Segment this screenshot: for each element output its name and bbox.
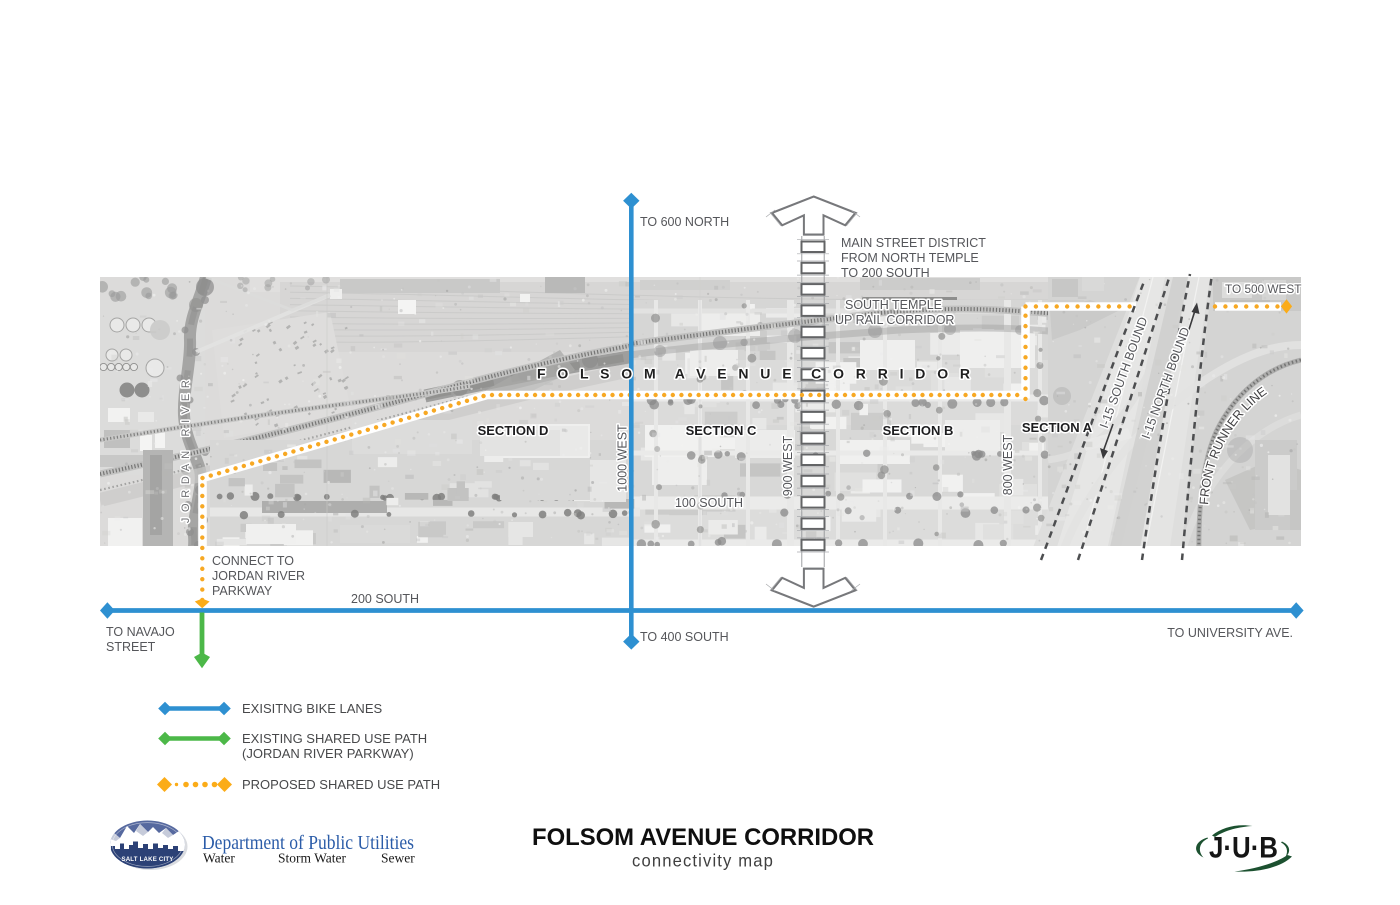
svg-text:STREET: STREET	[106, 640, 156, 654]
svg-text:EXISITNG BIKE LANES: EXISITNG BIKE LANES	[242, 701, 382, 716]
svg-text:SECTION A: SECTION A	[1022, 420, 1093, 435]
svg-text:PARKWAY: PARKWAY	[212, 584, 273, 598]
svg-text:UP RAIL CORRIDOR: UP RAIL CORRIDOR	[835, 313, 954, 327]
svg-text:200 SOUTH: 200 SOUTH	[351, 592, 419, 606]
svg-text:TO UNIVERSITY AVE.: TO UNIVERSITY AVE.	[1167, 626, 1293, 640]
svg-text:connectivity map: connectivity map	[632, 851, 774, 871]
svg-text:800 WEST: 800 WEST	[1001, 434, 1015, 495]
svg-text:PROPOSED SHARED USE PATH: PROPOSED SHARED USE PATH	[242, 777, 440, 792]
svg-text:J O R D A N R I V E R: J O R D A N R I V E R	[180, 379, 192, 523]
svg-text:900 WEST: 900 WEST	[781, 435, 795, 496]
svg-text:MAIN STREET DISTRICT: MAIN STREET DISTRICT	[841, 236, 986, 250]
svg-text:Sewer: Sewer	[381, 851, 415, 866]
svg-text:FROM NORTH TEMPLE: FROM NORTH TEMPLE	[841, 251, 979, 265]
svg-text:JORDAN RIVER: JORDAN RIVER	[212, 569, 305, 583]
svg-text:SECTION B: SECTION B	[883, 423, 954, 438]
svg-text:1000 WEST: 1000 WEST	[616, 424, 630, 492]
svg-text:J·U·B: J·U·B	[1209, 832, 1278, 865]
svg-text:TO 400 SOUTH: TO 400 SOUTH	[640, 630, 729, 644]
svg-text:SECTION D: SECTION D	[478, 423, 549, 438]
svg-text:SECTION C: SECTION C	[686, 423, 757, 438]
svg-text:SALT LAKE CITY: SALT LAKE CITY	[121, 856, 173, 863]
svg-text:EXISTING SHARED USE PATH: EXISTING SHARED USE PATH	[242, 731, 427, 746]
svg-text:(JORDAN RIVER PARKWAY): (JORDAN RIVER PARKWAY)	[242, 746, 414, 761]
svg-text:TO 600 NORTH: TO 600 NORTH	[640, 215, 729, 229]
svg-text:TO 500 WEST: TO 500 WEST	[1225, 282, 1301, 296]
svg-text:100 SOUTH: 100 SOUTH	[675, 496, 743, 510]
svg-text:CONNECT TO: CONNECT TO	[212, 554, 294, 568]
svg-text:Water: Water	[203, 851, 235, 866]
svg-text:Storm Water: Storm Water	[278, 851, 347, 866]
svg-text:TO 200 SOUTH: TO 200 SOUTH	[841, 266, 930, 280]
svg-text:FOLSOM AVENUE CORRIDOR: FOLSOM AVENUE CORRIDOR	[532, 824, 874, 851]
svg-text:SOUTH TEMPLE: SOUTH TEMPLE	[845, 298, 942, 312]
svg-text:TO NAVAJO: TO NAVAJO	[106, 625, 175, 639]
